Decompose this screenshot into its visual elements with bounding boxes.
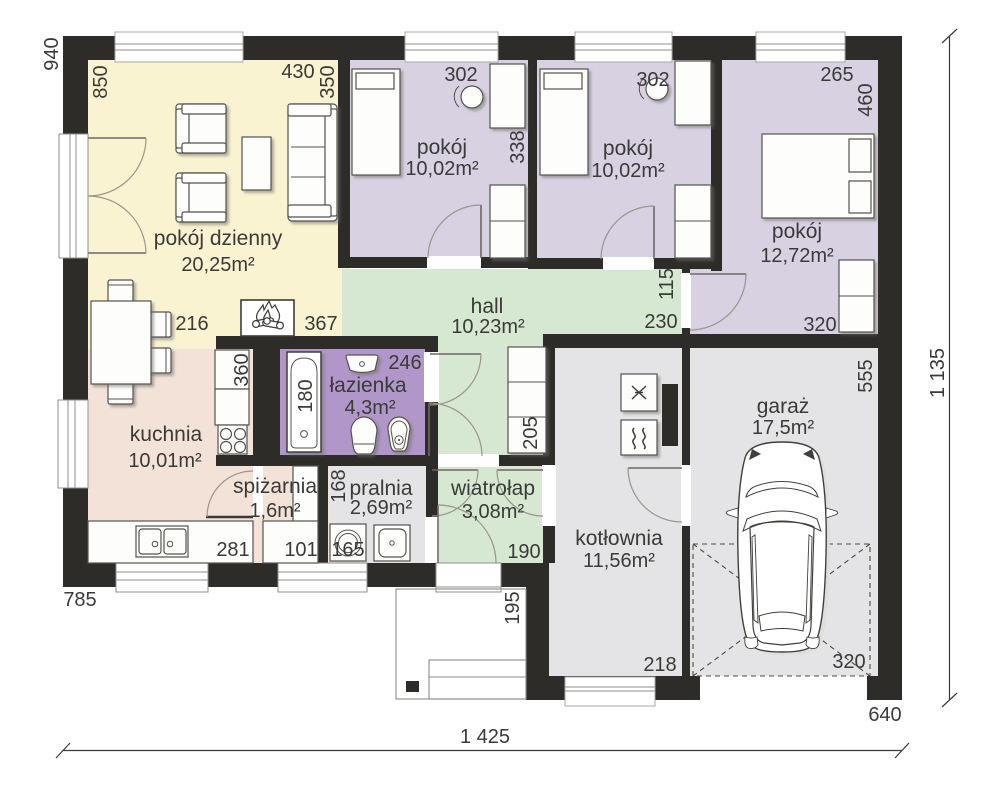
svg-text:785: 785 bbox=[63, 589, 96, 611]
svg-text:940: 940 bbox=[41, 37, 63, 70]
svg-text:302: 302 bbox=[444, 64, 477, 86]
svg-text:4,3m²: 4,3m² bbox=[344, 397, 395, 419]
svg-text:10,02m²: 10,02m² bbox=[591, 160, 665, 182]
svg-text:spiżarnia: spiżarnia bbox=[233, 475, 317, 498]
svg-text:11,56m²: 11,56m² bbox=[583, 550, 655, 572]
svg-text:360: 360 bbox=[231, 353, 253, 386]
svg-text:10,02m²: 10,02m² bbox=[405, 158, 479, 180]
svg-text:246: 246 bbox=[388, 352, 421, 374]
svg-text:łazienka: łazienka bbox=[329, 374, 406, 397]
svg-text:kotłownia: kotłownia bbox=[575, 527, 663, 550]
svg-text:115: 115 bbox=[656, 268, 678, 300]
svg-text:180: 180 bbox=[295, 379, 317, 412]
svg-text:hall: hall bbox=[471, 295, 504, 318]
svg-text:pokój: pokój bbox=[417, 136, 467, 159]
svg-text:20,25m²: 20,25m² bbox=[181, 254, 255, 276]
svg-text:pokój: pokój bbox=[603, 137, 653, 160]
svg-text:216: 216 bbox=[175, 313, 208, 335]
svg-text:12,72m²: 12,72m² bbox=[760, 245, 834, 267]
svg-text:320: 320 bbox=[803, 314, 836, 336]
svg-text:10,01m²: 10,01m² bbox=[128, 450, 202, 472]
svg-text:pokój: pokój bbox=[772, 220, 822, 243]
svg-text:10,23m²: 10,23m² bbox=[451, 316, 525, 338]
svg-text:230: 230 bbox=[644, 311, 677, 333]
svg-text:17,5m²: 17,5m² bbox=[752, 417, 815, 439]
svg-text:195: 195 bbox=[502, 591, 524, 624]
svg-text:205: 205 bbox=[520, 416, 542, 449]
svg-text:460: 460 bbox=[855, 83, 877, 116]
svg-text:555: 555 bbox=[855, 359, 877, 392]
svg-text:218: 218 bbox=[643, 654, 676, 676]
svg-text:pokój dzienny: pokój dzienny bbox=[154, 227, 283, 250]
svg-text:850: 850 bbox=[90, 65, 112, 98]
svg-text:garaż: garaż bbox=[757, 395, 810, 418]
svg-text:101: 101 bbox=[284, 539, 317, 561]
svg-text:165: 165 bbox=[331, 539, 364, 561]
svg-text:168: 168 bbox=[328, 469, 350, 502]
svg-text:wiatrołap: wiatrołap bbox=[450, 477, 535, 500]
svg-text:367: 367 bbox=[304, 313, 337, 335]
svg-text:640: 640 bbox=[868, 704, 901, 726]
svg-text:1,6m²: 1,6m² bbox=[249, 500, 300, 522]
svg-text:350: 350 bbox=[317, 65, 339, 98]
svg-text:kuchnia: kuchnia bbox=[130, 423, 203, 446]
svg-text:2,69m²: 2,69m² bbox=[350, 497, 413, 519]
svg-text:1 135: 1 135 bbox=[927, 348, 949, 398]
svg-text:430: 430 bbox=[281, 61, 314, 83]
svg-text:320: 320 bbox=[832, 651, 865, 673]
svg-text:338: 338 bbox=[507, 130, 529, 163]
svg-text:1 425: 1 425 bbox=[460, 726, 510, 748]
svg-text:281: 281 bbox=[216, 539, 249, 561]
svg-text:302: 302 bbox=[636, 69, 669, 91]
svg-text:3,08m²: 3,08m² bbox=[462, 501, 525, 523]
svg-text:265: 265 bbox=[820, 64, 853, 86]
svg-text:190: 190 bbox=[507, 541, 540, 563]
